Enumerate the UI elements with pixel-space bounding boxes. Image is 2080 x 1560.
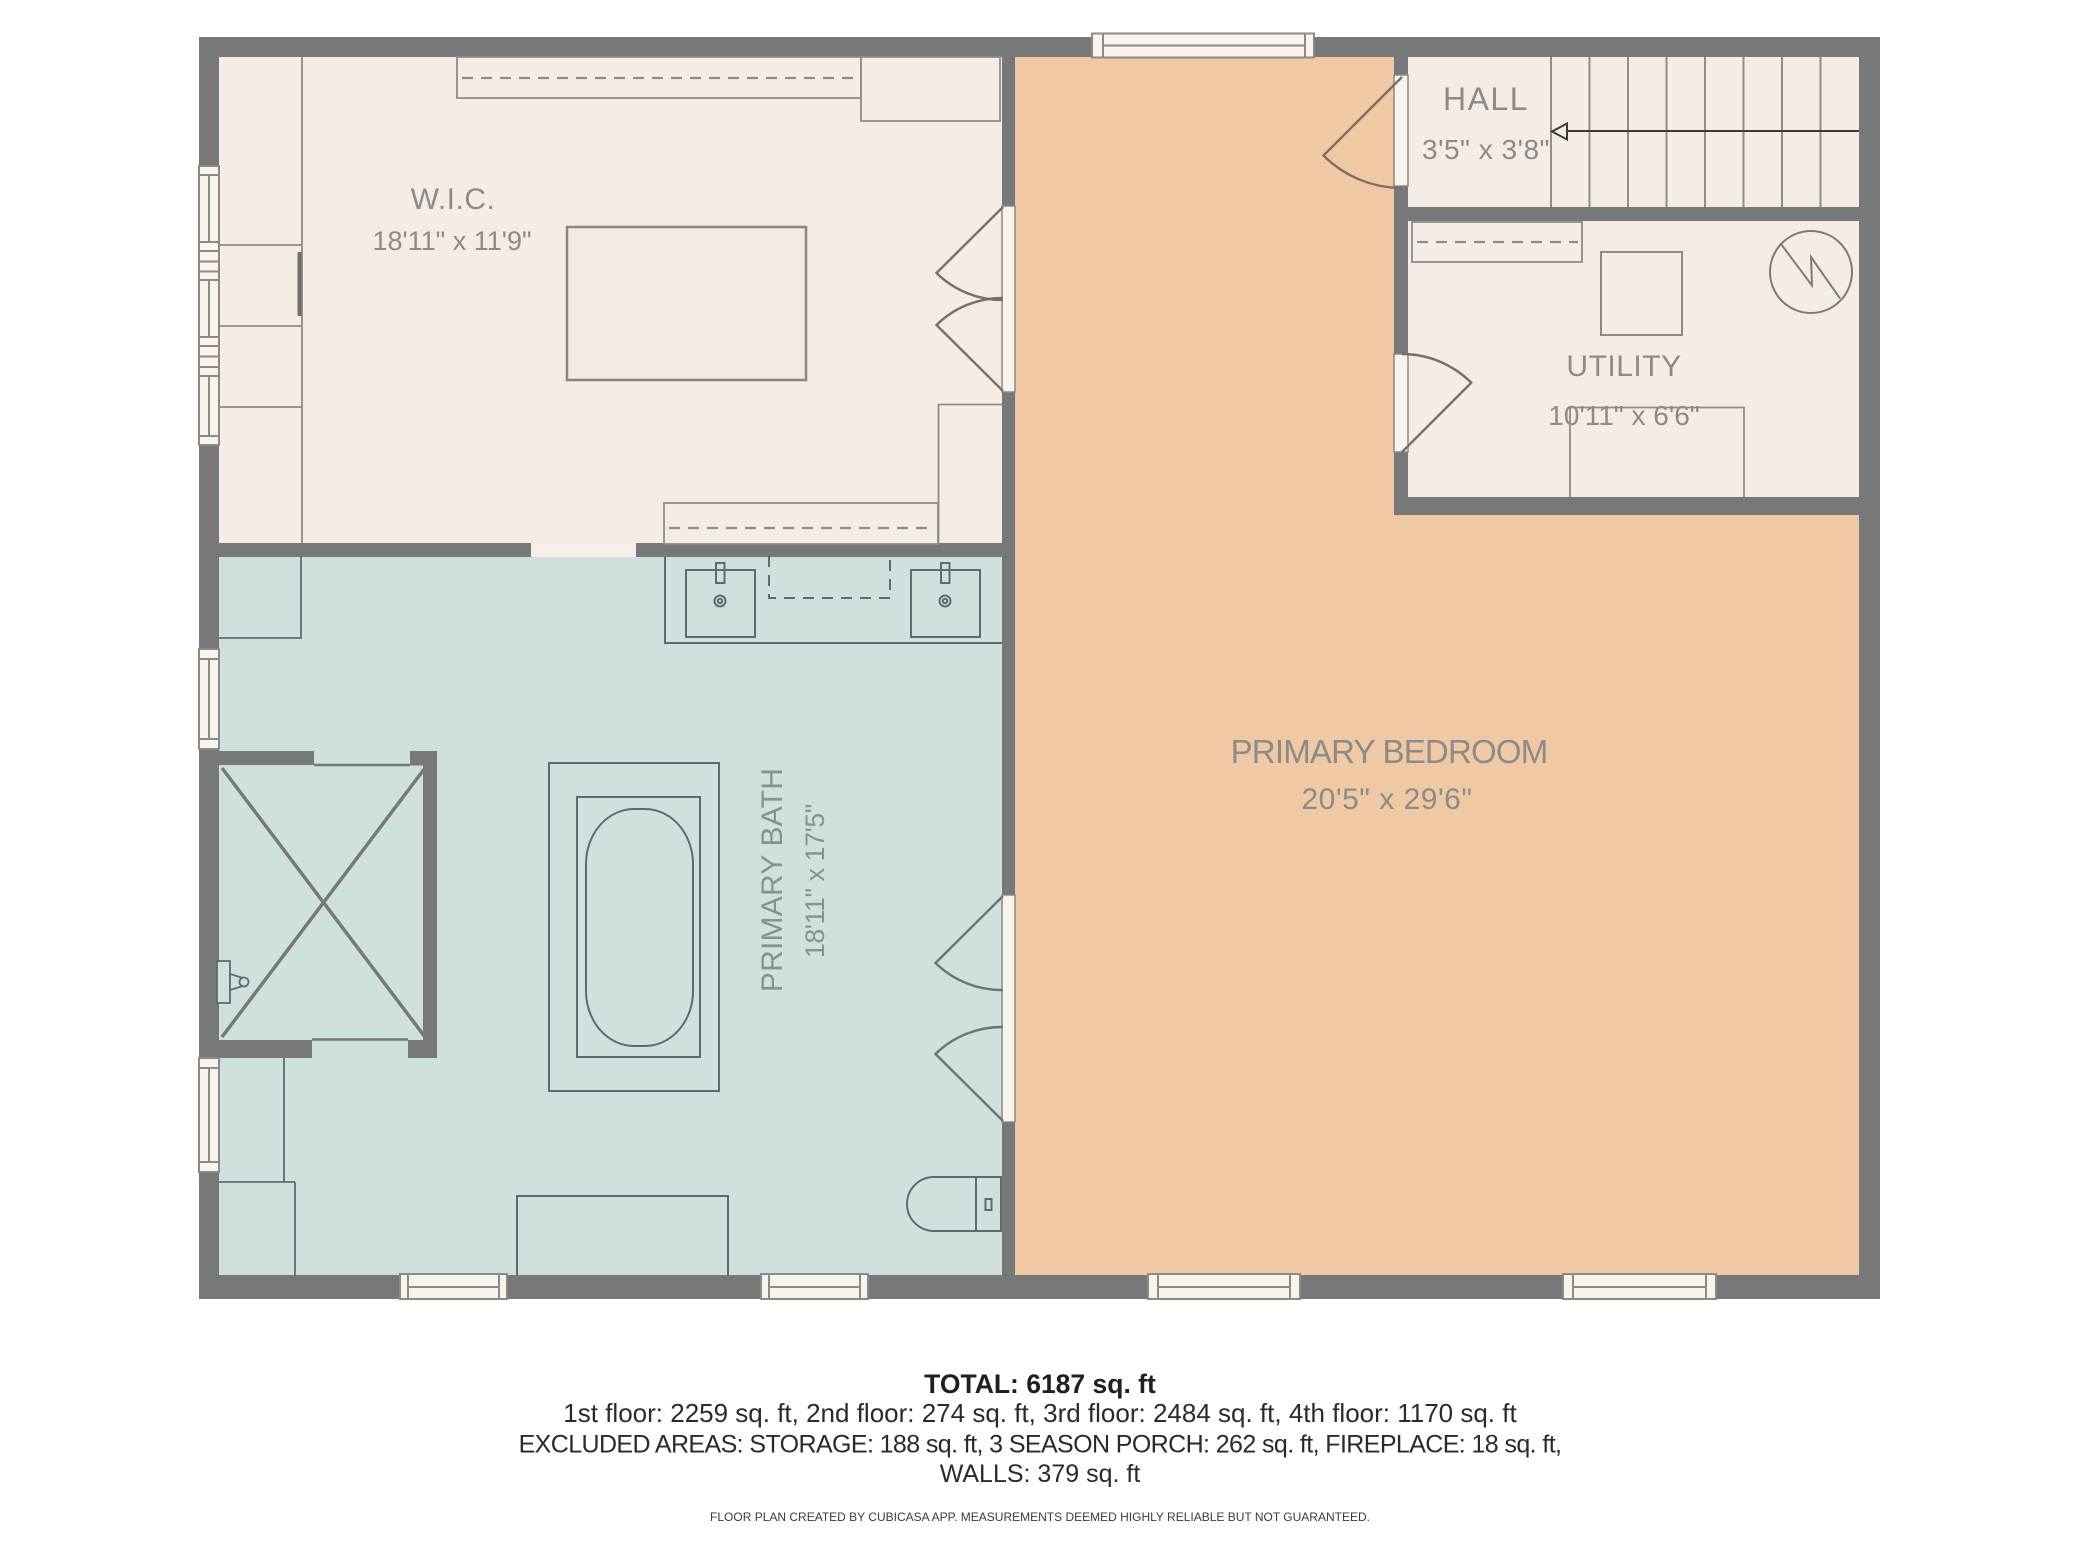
svg-text:EXCLUDED AREAS: STORAGE: 188 s: EXCLUDED AREAS: STORAGE: 188 sq. ft, 3 S…: [519, 1431, 1562, 1459]
svg-text:20'5" x 29'6": 20'5" x 29'6": [1301, 783, 1472, 816]
svg-text:WALLS: 379 sq. ft: WALLS: 379 sq. ft: [940, 1460, 1141, 1488]
svg-text:UTILITY: UTILITY: [1566, 350, 1681, 383]
svg-text:PRIMARY BATH: PRIMARY BATH: [756, 768, 789, 992]
svg-text:PRIMARY BEDROOM: PRIMARY BEDROOM: [1231, 733, 1548, 770]
svg-text:3'5" x 3'8": 3'5" x 3'8": [1422, 134, 1550, 165]
svg-text:18'11" x 11'9": 18'11" x 11'9": [372, 226, 531, 256]
svg-text:10'11" x 6'6": 10'11" x 6'6": [1548, 400, 1699, 431]
svg-text:W.I.C.: W.I.C.: [411, 183, 496, 216]
svg-text:FLOOR PLAN CREATED BY CUBICASA: FLOOR PLAN CREATED BY CUBICASA APP. MEAS…: [710, 1510, 1370, 1524]
svg-text:TOTAL: 6187 sq. ft: TOTAL: 6187 sq. ft: [924, 1369, 1156, 1399]
svg-text:1st floor: 2259 sq. ft, 2nd fl: 1st floor: 2259 sq. ft, 2nd floor: 274 s…: [563, 1398, 1517, 1428]
svg-text:HALL: HALL: [1443, 81, 1529, 117]
svg-text:18'11" x 17'5": 18'11" x 17'5": [800, 804, 830, 958]
